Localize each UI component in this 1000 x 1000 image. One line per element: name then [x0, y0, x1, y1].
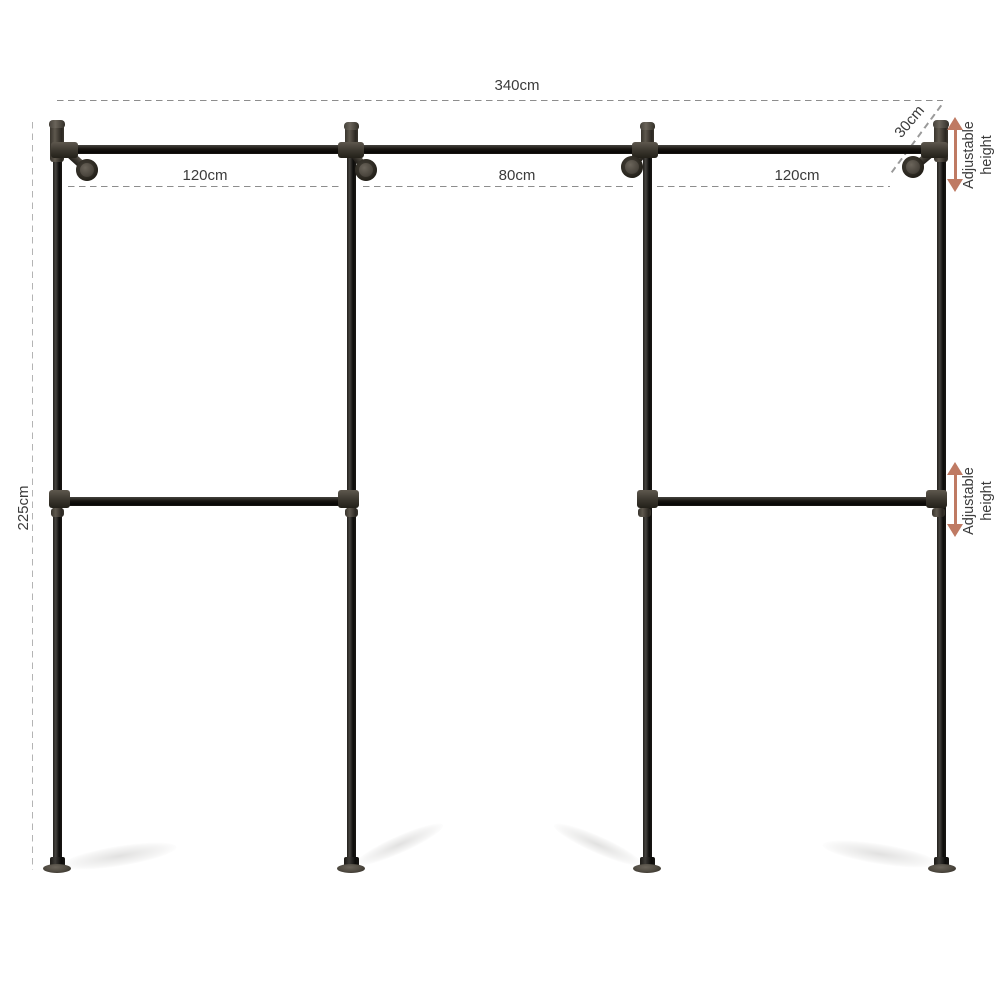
top-fitting-sleeve-4 — [921, 142, 948, 158]
total-width-dimension-line — [57, 100, 943, 101]
wall-flange-3 — [621, 156, 643, 178]
floor-shadow-4 — [821, 835, 938, 873]
floor-flange-1 — [43, 864, 71, 873]
adjustable-height-label-top: Adjustable height — [960, 113, 996, 197]
lower-tee-fitting-2 — [338, 490, 359, 508]
top-rail — [57, 145, 941, 154]
wall-flange-2 — [355, 159, 377, 181]
top-fitting-cap-2 — [344, 122, 359, 130]
section-width-label-middle: 80cm — [417, 167, 617, 185]
top-fitting-sleeve-3 — [632, 142, 658, 158]
floor-flange-3 — [633, 864, 661, 873]
total-width-label: 340cm — [417, 77, 617, 95]
floor-flange-2 — [337, 864, 365, 873]
section-width-label-left: 120cm — [105, 167, 305, 185]
top-fitting-cap-1 — [49, 120, 65, 128]
lower-coupler-1 — [51, 508, 64, 517]
lower-coupler-4 — [932, 508, 945, 517]
wall-flange-1 — [76, 159, 98, 181]
section-middle-dimension-line — [363, 186, 633, 187]
section-width-label-right: 120cm — [697, 167, 897, 185]
lower-tee-fitting-4 — [926, 490, 947, 508]
top-fitting-sleeve-1 — [51, 142, 78, 158]
floor-shadow-1 — [61, 837, 178, 875]
lower-coupler-2 — [345, 508, 358, 517]
floor-shadow-3 — [551, 817, 645, 871]
arrow-shaft — [954, 472, 957, 527]
lower-rail-left — [61, 497, 347, 506]
lower-tee-fitting-3 — [637, 490, 658, 508]
floor-shadow-2 — [353, 817, 447, 871]
adjustable-height-label-middle: Adjustable height — [960, 459, 996, 543]
floor-flange-4 — [928, 864, 956, 873]
lower-coupler-3 — [638, 508, 651, 517]
top-fitting-cap-3 — [640, 122, 655, 130]
lower-tee-fitting-1 — [49, 490, 70, 508]
section-right-dimension-line — [657, 186, 890, 187]
arrow-shaft — [954, 127, 957, 182]
lower-rail-right — [651, 497, 937, 506]
top-fitting-sleeve-2 — [338, 142, 364, 158]
section-left-dimension-line — [68, 186, 340, 187]
wall-flange-4 — [902, 156, 924, 178]
dimension-diagram: 340cm 120cm 80cm 120cm 225cm 30cm Adjust… — [0, 0, 1000, 1000]
height-label: 225cm — [15, 476, 33, 540]
